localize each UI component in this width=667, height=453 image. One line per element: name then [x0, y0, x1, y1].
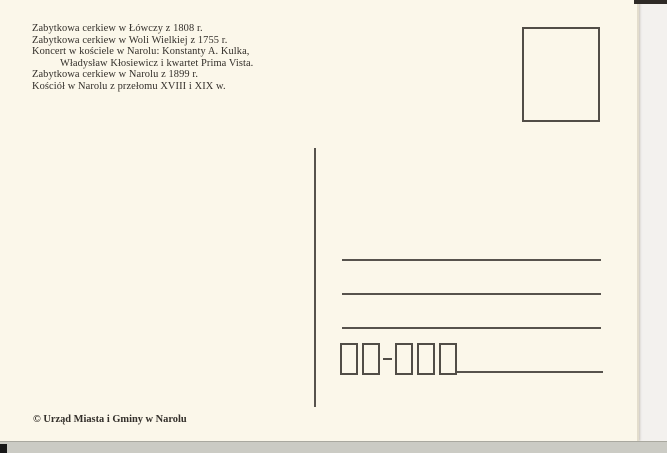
postal-code-dash: [383, 358, 392, 360]
caption-line: Zabytkowa cerkiew w Łówczy z 1808 r.: [32, 23, 253, 35]
caption-line: Kościół w Narolu z przełomu XVIII i XIX …: [32, 81, 253, 93]
postal-code-box: [439, 343, 457, 375]
address-line-1: [342, 259, 601, 261]
postcard-back: Zabytkowa cerkiew w Łówczy z 1808 r. Zab…: [0, 0, 639, 441]
postal-code-box: [417, 343, 435, 375]
caption-line: Władysław Kłosiewicz i kwartet Prima Vis…: [32, 58, 253, 70]
postal-code-box: [340, 343, 358, 375]
post-town-line: [457, 371, 603, 373]
caption-line: Zabytkowa cerkiew w Woli Wielkiej z 1755…: [32, 35, 253, 47]
copyright-notice: © Urząd Miasta i Gminy w Narolu: [33, 414, 187, 425]
scanned-image: Zabytkowa cerkiew w Łówczy z 1808 r. Zab…: [0, 0, 667, 453]
postal-code-box: [362, 343, 380, 375]
caption-line: Koncert w kościele w Narolu: Konstanty A…: [32, 46, 253, 58]
caption-line: Zabytkowa cerkiew w Narolu z 1899 r.: [32, 69, 253, 81]
postal-code-box: [395, 343, 413, 375]
caption-block: Zabytkowa cerkiew w Łówczy z 1808 r. Zab…: [32, 23, 253, 93]
scan-edge-bottom-left: [0, 444, 7, 453]
stamp-box: [522, 27, 600, 122]
postal-code-group-2: [395, 343, 457, 375]
address-line-3: [342, 327, 601, 329]
address-section-divider: [314, 148, 316, 407]
address-line-2: [342, 293, 601, 295]
postal-code-group-1: [340, 343, 380, 375]
scan-edge-top-right: [634, 0, 667, 4]
postal-code-row: [340, 343, 457, 375]
scan-edge-bottom: [0, 441, 667, 453]
